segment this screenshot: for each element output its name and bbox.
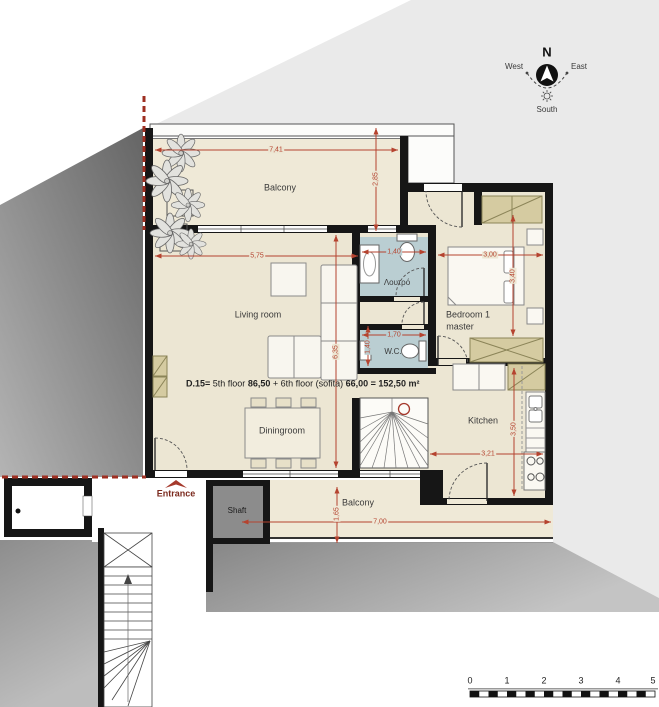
dim-label-living-depth: 6,35 <box>333 344 340 360</box>
scale-tick-2: 2 <box>541 677 546 686</box>
wall-landing-east <box>206 544 213 592</box>
wall-bath-column-west-b <box>352 398 360 470</box>
dim-label-kitchen-depth: 3,50 <box>511 421 518 437</box>
room-label-balcony-bottom: Balcony <box>342 499 374 508</box>
wall-bedroom-bath <box>428 225 436 366</box>
wall-wc-south <box>352 368 436 374</box>
dim-label-balcony-top-depth: 2,85 <box>373 171 380 187</box>
sink-bathroom <box>360 245 379 283</box>
wall-shelves <box>153 356 167 397</box>
scale-bar-graphic <box>468 688 658 697</box>
room-label-shaft: Shaft <box>228 507 247 515</box>
entrance-label: Entrance <box>157 490 196 499</box>
plant-icon <box>171 188 205 222</box>
dim-label-wc-width: 1,70 <box>386 332 402 339</box>
common-stair <box>104 533 152 707</box>
room-label-living: Living room <box>235 311 282 320</box>
room-label-balcony-top: Balcony <box>264 184 296 193</box>
wardrobe-top <box>482 196 542 223</box>
scale-tick-1: 1 <box>504 677 509 686</box>
dim-label-bathroom-width: 1,40 <box>386 249 402 256</box>
wall-wardrobe-nub <box>474 192 482 225</box>
room-label-bedroom-line1: Bedroom 1 <box>446 311 490 320</box>
wall-balcony-top-east <box>400 136 408 233</box>
scale-tick-4: 4 <box>615 677 620 686</box>
elevator <box>4 478 92 537</box>
floor-plan-drawing <box>0 0 659 707</box>
compass-east-label: East <box>571 63 587 71</box>
scale-tick-5: 5 <box>650 677 655 686</box>
floor-plan-canvas: Balcony Living room Diningroom Bedroom 1… <box>0 0 659 707</box>
coffee-table <box>271 263 306 296</box>
compass-south-label: South <box>537 106 558 114</box>
scale-tick-3: 3 <box>578 677 583 686</box>
wall-stair-west <box>98 528 104 707</box>
dim-label-balcony-bottom-depth: 1,65 <box>334 506 341 522</box>
plant-icon <box>176 229 206 259</box>
wardrobe-bottom <box>470 338 543 362</box>
room-label-wc: W.C. <box>384 348 401 356</box>
dim-label-kitchen-width: 3,21 <box>480 451 496 458</box>
compass-west-label: West <box>505 63 523 71</box>
room-label-kitchen: Kitchen <box>468 417 498 426</box>
room-label-bathroom: Λουτρό <box>384 279 410 287</box>
building-shadow-southwest <box>0 540 98 707</box>
stove <box>524 452 545 490</box>
dim-label-living-width: 5,75 <box>249 253 265 260</box>
dim-label-bedroom-depth: 3,40 <box>510 268 517 284</box>
building-shadow-west <box>0 128 143 477</box>
room-label-dining: Diningroom <box>259 427 305 436</box>
sofita-stair <box>360 398 428 468</box>
dim-label-balcony-top-width: 7,41 <box>268 147 284 154</box>
unit-id: D.15= <box>186 379 210 389</box>
nightstand-top <box>527 229 543 245</box>
dim-label-wc-depth: 1,40 <box>365 339 372 355</box>
dim-label-bedroom-width: 3,00 <box>482 252 498 259</box>
wall-east <box>545 183 553 505</box>
elevator-call-dot <box>16 509 21 514</box>
room-label-bedroom-line2: master <box>446 323 474 332</box>
scale-tick-0: 0 <box>467 677 472 686</box>
dim-label-balcony-bottom-width: 7,00 <box>372 519 388 526</box>
nightstand-bottom <box>527 308 543 324</box>
compass-north-label: N <box>542 46 551 59</box>
unit-area-label: D.15= 5th floor 86,50 + 6th floor (sofit… <box>186 380 419 389</box>
wall-kitchen-post <box>420 470 443 505</box>
